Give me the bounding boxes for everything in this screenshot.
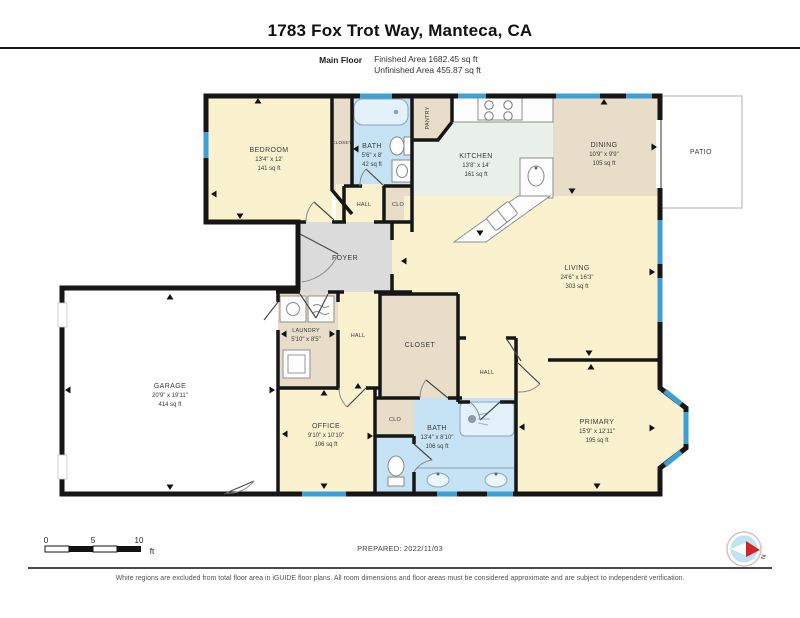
- toilet-icon: [390, 137, 404, 155]
- bathtub-icon: [354, 99, 408, 125]
- laundry-dims: 5'10" x 8'5": [291, 337, 321, 343]
- vanity-icon: [392, 160, 412, 182]
- patio-door: [656, 120, 664, 188]
- room-hall-mid: [338, 292, 380, 390]
- drain-icon: [394, 110, 399, 115]
- living-label: LIVING: [564, 265, 589, 272]
- office-area: 106 sq ft: [314, 442, 337, 448]
- bath-bottom-dims: 13'4" x 8'10": [421, 435, 454, 441]
- kitchen-dims: 13'8" x 14': [462, 163, 489, 169]
- compass-icon: N: [727, 532, 766, 566]
- dining-area: 105 sq ft: [592, 161, 615, 167]
- patio-label: PATIO: [690, 149, 712, 156]
- toilet-tank-icon: [404, 137, 411, 155]
- room-office: [278, 388, 375, 494]
- faucet-icon: [535, 167, 538, 170]
- prepared-date: PREPARED: 2022/11/03: [357, 544, 443, 553]
- scale-tick-10: 10: [135, 536, 144, 545]
- toilet-icon: [388, 456, 404, 476]
- shower-head-icon: [468, 415, 476, 423]
- hall-right-label: HALL: [480, 370, 495, 376]
- clo-bottom-label: CLO: [389, 417, 401, 423]
- laundry-sink-icon: [283, 350, 310, 378]
- pantry-label: PANTRY: [425, 106, 431, 129]
- primary-area: 195 sq ft: [585, 438, 608, 444]
- scale-segment: [93, 546, 117, 552]
- bath-top-dims: 5'6" x 8': [362, 153, 383, 159]
- bedroom-area: 141 sq ft: [257, 166, 280, 172]
- clo-top-label: CLO: [392, 202, 404, 208]
- scale-segment: [117, 546, 141, 552]
- bath-bottom-area: 106 sq ft: [425, 444, 448, 450]
- kitchen-area: 161 sq ft: [464, 172, 487, 178]
- office-label: OFFICE: [312, 423, 340, 430]
- room-living-nook: [392, 222, 404, 294]
- laundry-label: LAUNDRY: [292, 328, 320, 334]
- living-area: 303 sq ft: [565, 284, 588, 290]
- kitchen-label: KITCHEN: [459, 153, 493, 160]
- bath-bottom-label: BATH: [427, 425, 447, 432]
- foyer-label: FOYER: [332, 255, 358, 262]
- room-garage: [62, 288, 278, 494]
- bedroom-dims: 13'4" x 12': [255, 157, 282, 163]
- scale-unit: ft: [150, 547, 155, 556]
- dining-dims: 10'9" x 9'9": [589, 152, 619, 158]
- faucet-icon: [495, 473, 498, 476]
- scale-segment: [45, 546, 69, 552]
- office-dims: 9'10" x 10'10": [308, 433, 344, 439]
- closet-top-label: CLOSET: [332, 140, 352, 145]
- floor-plan-svg: BEDROOM 13'4" x 12' 141 sq ft CLOSET BAT…: [0, 0, 800, 618]
- scale-tick-5: 5: [91, 536, 96, 545]
- disclaimer-text: White regions are excluded from total fl…: [116, 575, 685, 582]
- primary-dims: 15'9" x 12'11": [579, 429, 615, 435]
- footer-divider: [28, 567, 772, 569]
- garage-dims: 20'9" x 19'11": [152, 393, 188, 399]
- closet-mid-label: CLOSET: [405, 342, 436, 349]
- living-dims: 24'6" x 16'3": [561, 275, 594, 281]
- garage-opening: [58, 303, 67, 327]
- floorplan-page: 1783 Fox Trot Way, Manteca, CA Main Floo…: [0, 0, 800, 618]
- hall-mid-label: HALL: [351, 333, 366, 339]
- scale-bar: 0 5 10 ft: [44, 536, 155, 556]
- garage-area: 414 sq ft: [158, 402, 181, 408]
- bath-top-label: BATH: [362, 143, 382, 150]
- hall-top-label: HALL: [357, 202, 372, 208]
- toilet-tank-icon: [388, 477, 404, 486]
- bath-top-area: 42 sq ft: [362, 162, 382, 168]
- bedroom-label: BEDROOM: [250, 147, 289, 154]
- garage-label: GARAGE: [154, 383, 186, 390]
- washer-icon: [280, 296, 306, 322]
- compass-north-label: N: [759, 554, 767, 560]
- garage-opening: [58, 455, 67, 479]
- dining-label: DINING: [591, 142, 618, 149]
- scale-segment: [69, 546, 93, 552]
- scale-tick-0: 0: [44, 536, 49, 545]
- faucet-icon: [437, 473, 440, 476]
- primary-label: PRIMARY: [580, 419, 615, 426]
